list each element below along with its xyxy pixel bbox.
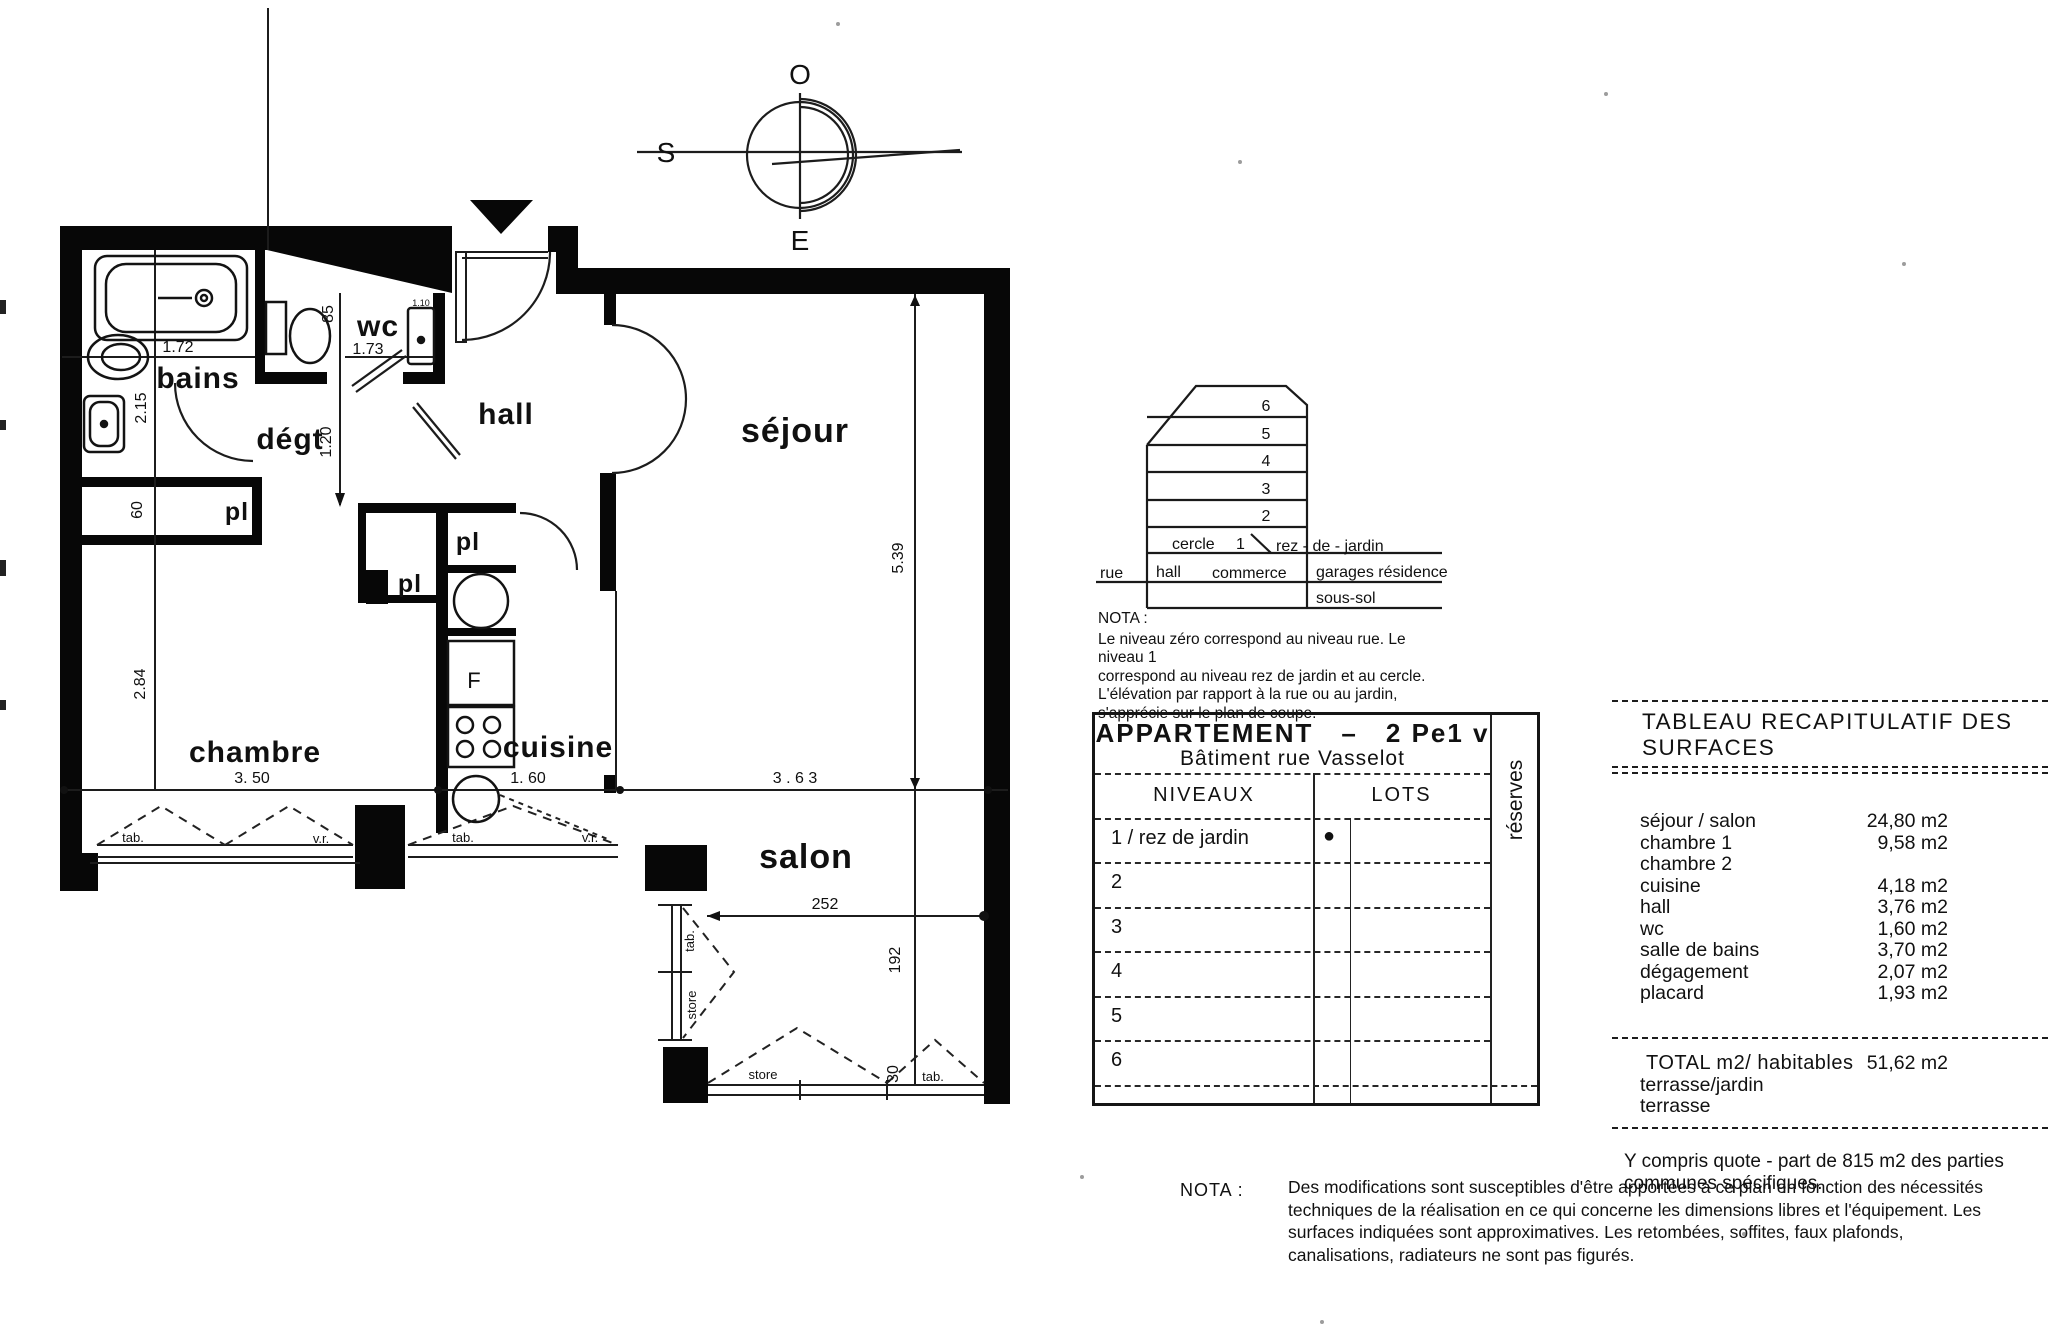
label-fridge-f: F bbox=[467, 668, 480, 693]
dim-252: 252 bbox=[812, 896, 839, 913]
scanned-floor-plan-page: bains wc hall séjour dégt pl pl pl chamb… bbox=[0, 0, 2048, 1342]
dim-3-63: 3 . 6 3 bbox=[773, 770, 818, 787]
surface-room-label: terrasse bbox=[1640, 1095, 1710, 1118]
dim-1-60: 1. 60 bbox=[510, 770, 546, 787]
surfaces-summary-table: TABLEAU RECAPITULATIF DES SURFACES séjou… bbox=[1612, 700, 2048, 1196]
floor-plan-drawing: bains wc hall séjour dégt pl pl pl chamb… bbox=[0, 0, 1030, 1150]
walls-group bbox=[60, 200, 1010, 1104]
dim-30: 30 bbox=[885, 1065, 902, 1083]
reserves-rotated-label: réserves bbox=[1491, 725, 1541, 875]
table-row: 4 bbox=[1095, 951, 1490, 995]
floor-number: 5 bbox=[1262, 426, 1271, 443]
room-label-pl-left: pl bbox=[225, 498, 249, 526]
dim-60: 60 bbox=[129, 501, 146, 519]
window-label-vr-cuisine: v.r. bbox=[582, 830, 598, 845]
section-nota-line: Le niveau zéro correspond au niveau rue.… bbox=[1098, 631, 1438, 668]
scan-edge-mark bbox=[0, 420, 6, 430]
lot-marker-dot: ● bbox=[1323, 825, 1335, 848]
scan-speck bbox=[1604, 92, 1608, 96]
window-label-tab-bay: tab. bbox=[682, 930, 697, 952]
table-rule bbox=[1612, 1127, 2048, 1129]
surface-room-label: chambre 2 bbox=[1640, 853, 1732, 876]
dimension-lines-group bbox=[62, 8, 1008, 1100]
dim-3-50: 3. 50 bbox=[234, 770, 270, 787]
table-row: 5 bbox=[1095, 996, 1490, 1040]
floor-number: 6 bbox=[1262, 398, 1271, 415]
surface-row: chambre 1 9,58 m2 bbox=[1612, 832, 2048, 854]
surface-row: chambre 2 bbox=[1612, 853, 2048, 875]
floor-number: 4 bbox=[1262, 453, 1271, 470]
surface-row: placard 1,93 m2 bbox=[1612, 982, 2048, 1004]
kitchen-sink-icon bbox=[453, 776, 499, 822]
building-level-labels: cercle 1 rez - de - jardin rue hall comm… bbox=[1100, 536, 1448, 607]
surface-row: terrasse/jardin bbox=[1612, 1074, 2048, 1096]
dim-85: 85 bbox=[320, 305, 337, 323]
bottom-nota-text: Des modifications sont susceptibles d'êt… bbox=[1288, 1176, 2010, 1266]
label-rez-de-jardin: rez - de - jardin bbox=[1276, 538, 1384, 555]
table-row: 3 bbox=[1095, 907, 1490, 951]
level-row-label: 3 bbox=[1111, 916, 1122, 939]
surface-row: séjour / salon 24,80 m2 bbox=[1612, 810, 2048, 832]
dim-1-73: 1.73 bbox=[352, 341, 383, 358]
room-label-chambre: chambre bbox=[189, 736, 321, 769]
section-nota: NOTA : Le niveau zéro correspond au nive… bbox=[1098, 610, 1438, 723]
level-row-label: 5 bbox=[1111, 1005, 1122, 1028]
room-label-degt: dégt bbox=[256, 423, 323, 456]
fridge-icon bbox=[448, 641, 514, 705]
apartment-building-name: Bâtiment rue Vasselot bbox=[1095, 747, 1490, 771]
footnote-line: Y compris quote - part de 815 m2 des par… bbox=[1624, 1151, 2048, 1174]
label-cercle: cercle bbox=[1172, 536, 1215, 553]
section-nota-line: correspond au niveau rez de jardin et au… bbox=[1098, 668, 1438, 687]
surface-row: hall 3,76 m2 bbox=[1612, 896, 2048, 918]
surface-area-value: 1,60 m2 bbox=[1798, 918, 1948, 941]
surface-area-value: 2,07 m2 bbox=[1798, 961, 1948, 984]
section-nota-line: L'élévation par rapport à la rue ou au j… bbox=[1098, 686, 1438, 705]
room-label-pl-top: pl bbox=[456, 528, 480, 556]
apartment-table-header: NIVEAUX LOTS bbox=[1095, 773, 1490, 818]
scan-speck bbox=[1902, 262, 1906, 266]
room-labels-group: bains wc hall séjour dégt pl pl pl chamb… bbox=[156, 310, 853, 876]
nota-line: surfaces indiquées sont approximatives. … bbox=[1288, 1221, 2010, 1244]
window-label-tab-cuisine: tab. bbox=[452, 830, 474, 845]
scan-speck bbox=[1320, 1320, 1324, 1324]
compass-west-label: O bbox=[789, 59, 811, 90]
dim-192: 192 bbox=[887, 947, 904, 974]
apartment-title-dash: – bbox=[1341, 718, 1357, 749]
window-label-tab-bottom: tab. bbox=[922, 1069, 944, 1084]
room-label-cuisine: cuisine bbox=[503, 731, 613, 764]
table-row: 6 bbox=[1095, 1040, 1490, 1084]
column-header-niveaux: NIVEAUX bbox=[1095, 773, 1313, 818]
surface-room-label: salle de bains bbox=[1640, 939, 1759, 962]
bottom-nota-title: NOTA : bbox=[1180, 1179, 1244, 1202]
nota-line: techniques de la réalisation en ce qui c… bbox=[1288, 1199, 2010, 1222]
table-rule bbox=[1612, 700, 2048, 702]
scan-speck bbox=[1742, 1232, 1746, 1236]
table-row: 2 bbox=[1095, 862, 1490, 906]
scan-edge-mark bbox=[0, 560, 6, 576]
label-sous-sol: sous-sol bbox=[1316, 590, 1376, 607]
label-rue: rue bbox=[1100, 565, 1123, 582]
section-nota-title: NOTA : bbox=[1098, 610, 1438, 629]
compass-labels-group: O S E bbox=[657, 59, 811, 256]
surface-area-value: 3,70 m2 bbox=[1798, 939, 1948, 962]
dim-1-72: 1.72 bbox=[162, 339, 193, 356]
table-rule bbox=[1095, 773, 1490, 775]
apartment-table-title: APPARTEMENT – 2 Pe1 v bbox=[1095, 715, 1490, 749]
room-label-pl-mid: pl bbox=[398, 570, 422, 598]
scan-edge-mark bbox=[0, 700, 6, 710]
window-label-tab-chambre: tab. bbox=[122, 830, 144, 845]
surface-area-value: 4,18 m2 bbox=[1798, 875, 1948, 898]
level-row-label: 6 bbox=[1111, 1049, 1122, 1072]
surface-room-label: séjour / salon bbox=[1640, 810, 1756, 833]
level-row-label: 2 bbox=[1111, 871, 1122, 894]
scan-speck bbox=[836, 22, 840, 26]
room-label-hall: hall bbox=[478, 398, 534, 431]
dim-1-20: 1.20 bbox=[318, 426, 335, 457]
window-label-store-bay: store bbox=[684, 991, 699, 1020]
surface-area-value: 3,76 m2 bbox=[1798, 896, 1948, 919]
label-level-one: 1 bbox=[1236, 536, 1245, 553]
bottom-nota: NOTA : Des modifications sont susceptibl… bbox=[1180, 1176, 2010, 1266]
surface-row: cuisine 4,18 m2 bbox=[1612, 875, 2048, 897]
room-label-wc: wc bbox=[356, 310, 399, 343]
level-row-label: 4 bbox=[1111, 960, 1122, 983]
table-rule bbox=[1095, 1085, 1537, 1087]
building-section-diagram: 6 5 4 3 2 cercle 1 rez - de - jardin rue… bbox=[1090, 370, 1515, 625]
toilet-icon bbox=[266, 302, 286, 354]
apartment-title-word: APPARTEMENT bbox=[1095, 718, 1313, 749]
table-row: 1 / rez de jardin ● bbox=[1095, 818, 1490, 862]
label-hall: hall bbox=[1156, 564, 1181, 581]
surface-room-label: dégagement bbox=[1640, 961, 1748, 984]
surface-row: terrasse bbox=[1612, 1095, 2048, 1117]
room-label-sejour: séjour bbox=[741, 412, 849, 450]
scan-speck bbox=[1080, 1175, 1084, 1179]
level-row-label: 1 / rez de jardin bbox=[1111, 827, 1249, 850]
label-commerce: commerce bbox=[1212, 565, 1287, 582]
surface-row: wc 1,60 m2 bbox=[1612, 918, 2048, 940]
surface-room-label: cuisine bbox=[1640, 875, 1701, 898]
surface-room-label: terrasse/jardin bbox=[1640, 1074, 1764, 1097]
compass-east-label: E bbox=[791, 225, 810, 256]
surfaces-rows: séjour / salon 24,80 m2 chambre 1 9,58 m… bbox=[1612, 810, 2048, 1004]
surfaces-table-title: TABLEAU RECAPITULATIF DES SURFACES bbox=[1642, 709, 2048, 761]
surface-row: salle de bains 3,70 m2 bbox=[1612, 939, 2048, 961]
table-rule bbox=[1612, 1037, 2048, 1039]
dim-5-39: 5.39 bbox=[890, 542, 907, 573]
label-garages-residence: garages résidence bbox=[1316, 564, 1448, 581]
surface-area-value: 24,80 m2 bbox=[1798, 810, 1948, 833]
total-value: 51,62 m2 bbox=[1798, 1052, 1948, 1075]
window-label-store-bottom: store bbox=[749, 1067, 778, 1082]
dim-2-84: 2.84 bbox=[132, 668, 149, 699]
floor-number: 3 bbox=[1262, 481, 1271, 498]
surface-room-label: hall bbox=[1640, 896, 1670, 919]
surface-area-value: 1,93 m2 bbox=[1798, 982, 1948, 1005]
scan-speck bbox=[1238, 160, 1242, 164]
dim-1-10: 1.10 bbox=[412, 298, 430, 308]
table-rule bbox=[1612, 766, 2048, 774]
nota-line: canalisations, radiateurs ne sont pas fi… bbox=[1288, 1244, 2010, 1267]
apartment-table: APPARTEMENT – 2 Pe1 v Bâtiment rue Vasse… bbox=[1092, 712, 1540, 1106]
room-label-bains: bains bbox=[156, 362, 239, 395]
surface-room-label: placard bbox=[1640, 982, 1704, 1005]
scan-edge-mark bbox=[0, 300, 6, 314]
nota-line: Des modifications sont susceptibles d'êt… bbox=[1288, 1176, 2010, 1199]
surface-room-label: chambre 1 bbox=[1640, 832, 1732, 855]
surface-row: dégagement 2,07 m2 bbox=[1612, 961, 2048, 983]
window-label-vr-chambre: v.r. bbox=[313, 831, 329, 846]
washer-icon bbox=[454, 574, 508, 628]
room-label-salon: salon bbox=[759, 838, 853, 876]
column-header-lots: LOTS bbox=[1313, 773, 1490, 818]
surface-area-value: 9,58 m2 bbox=[1798, 832, 1948, 855]
compass-rose bbox=[637, 93, 962, 219]
floor-number: 2 bbox=[1262, 508, 1271, 525]
dim-2-15: 2.15 bbox=[133, 392, 150, 423]
surface-room-label: wc bbox=[1640, 918, 1664, 941]
apartment-unit-code: 2 Pe1 v bbox=[1386, 718, 1490, 749]
compass-south-label: S bbox=[657, 137, 676, 168]
surfaces-total-row: TOTAL m2/ habitables 51,62 m2 bbox=[1612, 1052, 2048, 1074]
